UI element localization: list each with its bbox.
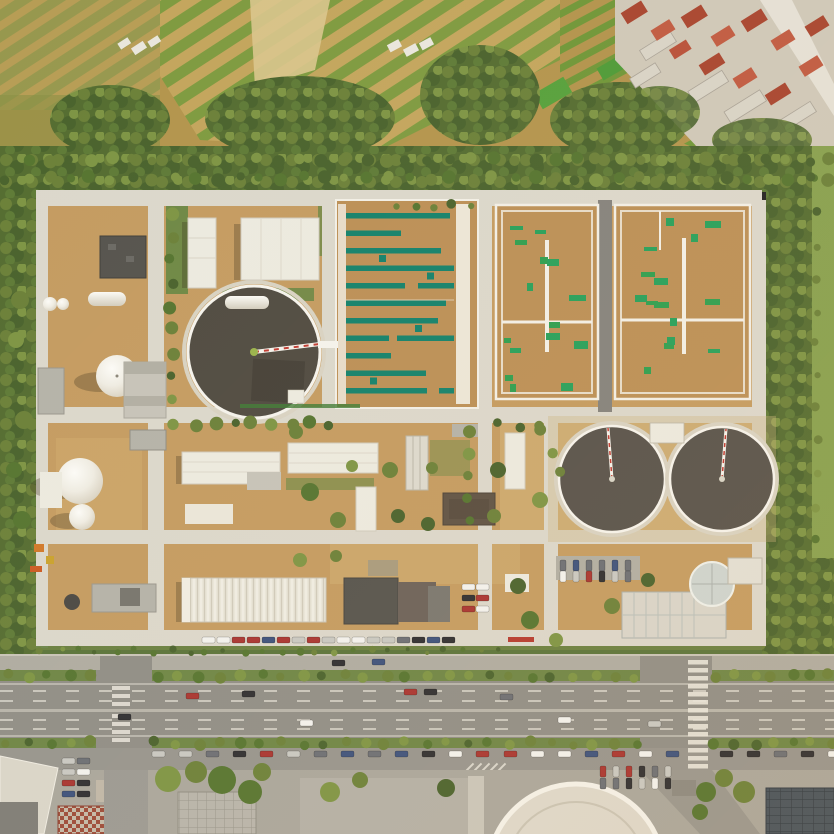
south-block <box>672 780 696 796</box>
tree <box>24 155 35 166</box>
tree <box>765 671 776 682</box>
car <box>77 780 90 786</box>
tree-median <box>152 738 640 748</box>
service-road <box>598 200 612 412</box>
biological-basins <box>496 205 750 399</box>
tree <box>164 254 174 264</box>
tree <box>430 204 437 211</box>
tree <box>405 173 414 182</box>
control-building <box>650 423 684 443</box>
car <box>558 717 571 723</box>
tree <box>811 402 820 411</box>
car <box>277 637 290 643</box>
building <box>176 582 182 622</box>
tree <box>254 739 264 749</box>
tree <box>590 173 604 187</box>
tree <box>15 411 33 429</box>
tree <box>814 470 822 478</box>
aeration-walkway-west <box>338 204 346 404</box>
tree <box>341 669 351 679</box>
clarifier-hub <box>250 348 258 356</box>
tree <box>445 155 454 164</box>
basin-green-patch <box>708 349 720 353</box>
car <box>118 714 131 720</box>
tree <box>636 156 645 165</box>
tree <box>167 372 175 380</box>
tree <box>423 740 432 749</box>
tree <box>465 152 477 164</box>
tree <box>496 647 500 651</box>
tree <box>614 172 625 183</box>
tree <box>811 338 819 346</box>
tree <box>571 152 583 164</box>
aeration-channel <box>346 318 438 324</box>
car <box>500 694 513 700</box>
south-block <box>0 802 38 834</box>
car <box>560 571 566 582</box>
tree <box>168 232 179 243</box>
car <box>341 751 354 757</box>
tree <box>145 174 158 187</box>
tree <box>763 174 774 185</box>
ribbed-warehouse <box>182 578 326 622</box>
basin-green-patch <box>504 338 511 343</box>
tree <box>460 647 465 652</box>
tree <box>210 417 224 431</box>
tree <box>346 460 358 472</box>
tree <box>708 738 719 749</box>
aeration-channel <box>346 388 427 394</box>
tree <box>172 154 181 163</box>
tree <box>167 419 178 430</box>
aeration-channel <box>346 336 389 342</box>
tree <box>656 173 665 182</box>
tree <box>297 648 305 656</box>
tree <box>172 671 182 681</box>
building <box>34 544 44 552</box>
tree <box>482 737 492 747</box>
tree <box>692 804 708 820</box>
tree <box>782 174 795 187</box>
tree <box>570 175 580 185</box>
tree <box>425 651 429 655</box>
basin-green-patch <box>540 257 548 264</box>
car <box>397 637 410 643</box>
tree <box>464 740 472 748</box>
basin-green-patch <box>670 318 677 326</box>
tree <box>442 170 455 183</box>
tree <box>317 671 326 680</box>
building <box>368 560 398 576</box>
tree <box>761 154 771 164</box>
workshop-white-large <box>241 218 319 280</box>
blower-tower <box>406 436 428 490</box>
tree <box>24 174 34 184</box>
tree <box>104 175 114 185</box>
south-block <box>468 776 484 834</box>
car <box>412 637 425 643</box>
tree <box>163 302 176 315</box>
tree <box>331 650 338 657</box>
zebra-bar <box>688 756 708 761</box>
basin-green-patch <box>510 226 523 230</box>
tree <box>352 772 368 788</box>
zebra-bar <box>688 724 708 729</box>
scene-shape <box>318 341 338 348</box>
tree <box>399 736 409 746</box>
tree <box>65 670 77 682</box>
tree <box>148 157 156 165</box>
car <box>586 571 592 582</box>
tree <box>67 174 75 182</box>
car <box>62 758 75 764</box>
tree <box>569 741 577 749</box>
tree <box>208 766 236 794</box>
building <box>505 433 525 489</box>
tree <box>362 154 374 166</box>
tree <box>592 671 602 681</box>
tree <box>127 154 136 163</box>
basin-green-patch <box>705 221 721 228</box>
car <box>260 751 273 757</box>
zebra-bar <box>688 708 708 713</box>
tree <box>728 739 739 750</box>
zebra-bar <box>688 692 708 697</box>
car <box>625 560 631 571</box>
tree <box>504 672 512 680</box>
tree <box>3 669 13 679</box>
tree <box>311 650 317 656</box>
tree <box>550 153 564 167</box>
tree <box>711 672 722 683</box>
car <box>639 766 645 777</box>
basin-green-patch <box>644 367 651 374</box>
tree <box>128 172 138 182</box>
tree <box>369 646 376 653</box>
clarifier-part <box>609 476 615 482</box>
center-divider <box>0 709 834 712</box>
car <box>665 766 671 777</box>
aeration-channel <box>346 248 441 254</box>
tree-belt <box>0 146 40 656</box>
tree <box>131 646 137 652</box>
building <box>124 396 166 406</box>
car <box>427 637 440 643</box>
aeration-basin <box>336 200 478 408</box>
tree <box>8 332 24 348</box>
tree <box>293 553 307 567</box>
car <box>613 778 619 789</box>
tree <box>42 670 50 678</box>
tree <box>299 171 309 181</box>
car <box>368 751 381 757</box>
tree <box>768 737 779 748</box>
tree <box>155 766 181 792</box>
tree <box>232 419 240 427</box>
car <box>62 791 75 797</box>
car <box>747 751 760 757</box>
car <box>186 693 199 699</box>
building <box>120 588 140 606</box>
zebra-bar <box>688 668 708 673</box>
tree <box>568 673 577 682</box>
tree <box>385 648 390 653</box>
tree <box>437 779 455 797</box>
tree <box>75 646 81 652</box>
tree-cluster <box>420 45 540 145</box>
building <box>30 566 42 572</box>
aeration-channel <box>346 213 450 219</box>
tree <box>265 418 277 430</box>
tree <box>82 170 95 183</box>
main-road <box>0 654 834 771</box>
car <box>367 637 380 643</box>
building <box>428 586 450 622</box>
car <box>242 691 255 697</box>
tree <box>742 175 752 185</box>
tree <box>189 651 194 656</box>
car <box>152 751 165 757</box>
tree <box>696 782 716 802</box>
aeration-channel <box>346 266 454 272</box>
tree <box>185 761 207 783</box>
building <box>46 556 54 564</box>
tree <box>445 670 455 680</box>
tree <box>806 157 815 166</box>
tree <box>611 672 621 682</box>
tree <box>788 669 799 680</box>
car <box>476 606 489 612</box>
car <box>372 659 385 665</box>
basin-green-patch <box>527 283 533 291</box>
tree <box>525 736 536 747</box>
tree <box>806 172 815 181</box>
tree <box>24 672 35 683</box>
building <box>124 362 166 374</box>
basin-green-patch <box>561 383 573 391</box>
tree <box>237 172 245 180</box>
car <box>62 780 75 786</box>
tree <box>211 173 225 187</box>
tree <box>485 170 497 182</box>
tree <box>634 171 645 182</box>
basin-green-patch <box>515 240 527 245</box>
tree <box>84 735 96 747</box>
building <box>126 256 134 262</box>
tree <box>350 647 355 652</box>
tree <box>487 151 500 164</box>
tree <box>340 174 348 182</box>
tree <box>303 415 316 428</box>
tree <box>677 155 691 169</box>
car <box>612 751 625 757</box>
tree <box>47 739 57 749</box>
car <box>612 560 618 571</box>
tree <box>149 736 159 746</box>
tree <box>814 310 821 317</box>
workshop-white <box>188 218 216 288</box>
zebra-bar <box>112 738 130 742</box>
car <box>599 560 605 571</box>
gate-barrier <box>508 637 534 642</box>
screenshot-root <box>0 0 834 834</box>
tree <box>171 740 180 749</box>
aeration-cell <box>415 325 422 332</box>
tree <box>722 155 732 165</box>
building <box>130 430 166 450</box>
car <box>395 751 408 757</box>
tree <box>234 669 246 681</box>
tree <box>822 668 833 679</box>
basin-green-patch <box>510 384 516 392</box>
tree <box>426 462 438 474</box>
tree <box>235 737 247 749</box>
car <box>449 751 462 757</box>
tree <box>677 172 686 181</box>
tree <box>165 321 178 334</box>
tree <box>532 492 548 508</box>
aeration-channel <box>346 353 391 359</box>
tree <box>276 673 284 681</box>
tree <box>421 517 435 531</box>
car <box>639 751 652 757</box>
zebra-bar <box>688 660 708 665</box>
zebra-bar <box>688 764 708 769</box>
tree <box>6 462 22 478</box>
car <box>462 584 475 590</box>
tree <box>380 154 394 168</box>
tree <box>357 672 367 682</box>
tree <box>505 740 515 750</box>
tree <box>166 207 179 220</box>
service-road <box>478 190 492 646</box>
zebra-bar <box>112 722 130 726</box>
car <box>720 751 733 757</box>
basin-green-patch <box>547 259 559 266</box>
tree <box>294 154 305 165</box>
tree <box>342 737 351 746</box>
tree <box>13 511 31 529</box>
car <box>573 560 579 571</box>
building <box>38 368 64 414</box>
car <box>504 751 517 757</box>
building <box>185 504 233 524</box>
tree <box>150 650 156 656</box>
tree <box>811 504 820 513</box>
tree <box>469 174 479 184</box>
building <box>40 472 62 508</box>
tree <box>413 203 421 211</box>
residential-element <box>620 86 700 138</box>
basin-green-patch <box>569 295 586 301</box>
car <box>322 637 335 643</box>
tree <box>393 203 399 209</box>
basin-green-patch <box>705 299 720 305</box>
tree <box>516 423 526 433</box>
tree <box>340 152 352 164</box>
zebra-bar <box>112 686 130 690</box>
solar-roof <box>766 788 834 834</box>
basin-green-patch <box>666 218 674 226</box>
tree <box>555 467 565 477</box>
tree <box>422 156 431 165</box>
tree <box>167 395 177 405</box>
tree <box>314 154 327 167</box>
car <box>62 769 75 775</box>
car <box>442 637 455 643</box>
zebra-bar <box>112 694 130 698</box>
car <box>585 751 598 757</box>
storage-tank <box>57 298 69 310</box>
tree <box>378 739 390 751</box>
tree <box>382 462 398 478</box>
tree <box>738 153 752 167</box>
tree <box>168 279 178 289</box>
tree <box>463 425 476 438</box>
aeration-channel <box>346 301 446 307</box>
car <box>600 778 606 789</box>
tree <box>253 763 271 781</box>
tree <box>235 156 245 166</box>
car <box>77 769 90 775</box>
tree <box>751 740 762 751</box>
car <box>476 584 489 590</box>
car <box>476 751 489 757</box>
tree <box>274 173 287 186</box>
tree <box>697 176 705 184</box>
clarifiers-east <box>548 416 777 542</box>
car <box>626 766 632 777</box>
aeration-walkway-east <box>456 204 470 404</box>
zebra-bar <box>688 716 708 721</box>
tree <box>804 669 815 680</box>
car <box>314 751 327 757</box>
car <box>462 595 475 601</box>
tree <box>36 647 43 654</box>
car <box>247 637 260 643</box>
tree <box>254 173 262 181</box>
cross-street <box>104 770 148 834</box>
zebra-bar <box>688 700 708 705</box>
tree <box>0 176 9 186</box>
basin-green-patch <box>574 341 588 349</box>
tree <box>301 483 319 501</box>
car <box>337 637 350 643</box>
horizontal-tank <box>225 296 269 309</box>
zebra-bar <box>112 702 130 706</box>
tree <box>276 736 286 746</box>
tree <box>259 669 268 678</box>
car <box>774 751 787 757</box>
tree <box>169 646 176 653</box>
tree <box>391 509 405 523</box>
basin-green-patch <box>691 234 698 242</box>
car <box>352 637 365 643</box>
basin-green-patch <box>549 322 560 328</box>
tree <box>193 671 205 683</box>
car <box>665 778 671 789</box>
car <box>476 595 489 601</box>
tree <box>300 741 309 750</box>
tree <box>11 291 29 309</box>
building <box>247 472 281 490</box>
tree <box>440 646 446 652</box>
car <box>531 751 544 757</box>
tree <box>715 769 733 787</box>
basin-green-patch <box>510 348 521 353</box>
car <box>307 637 320 643</box>
road-part <box>0 654 834 656</box>
